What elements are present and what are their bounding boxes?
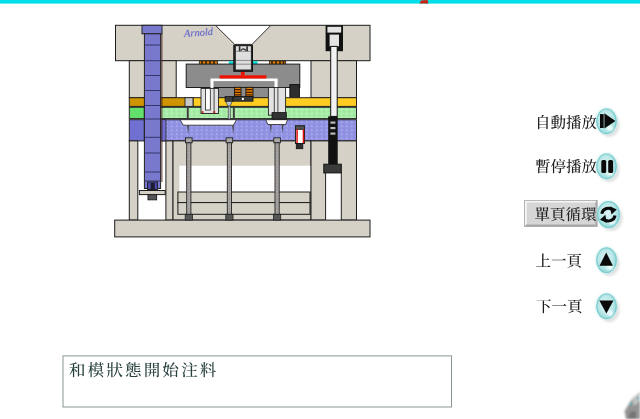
svg-text:Arnold: Arnold [182, 26, 214, 39]
